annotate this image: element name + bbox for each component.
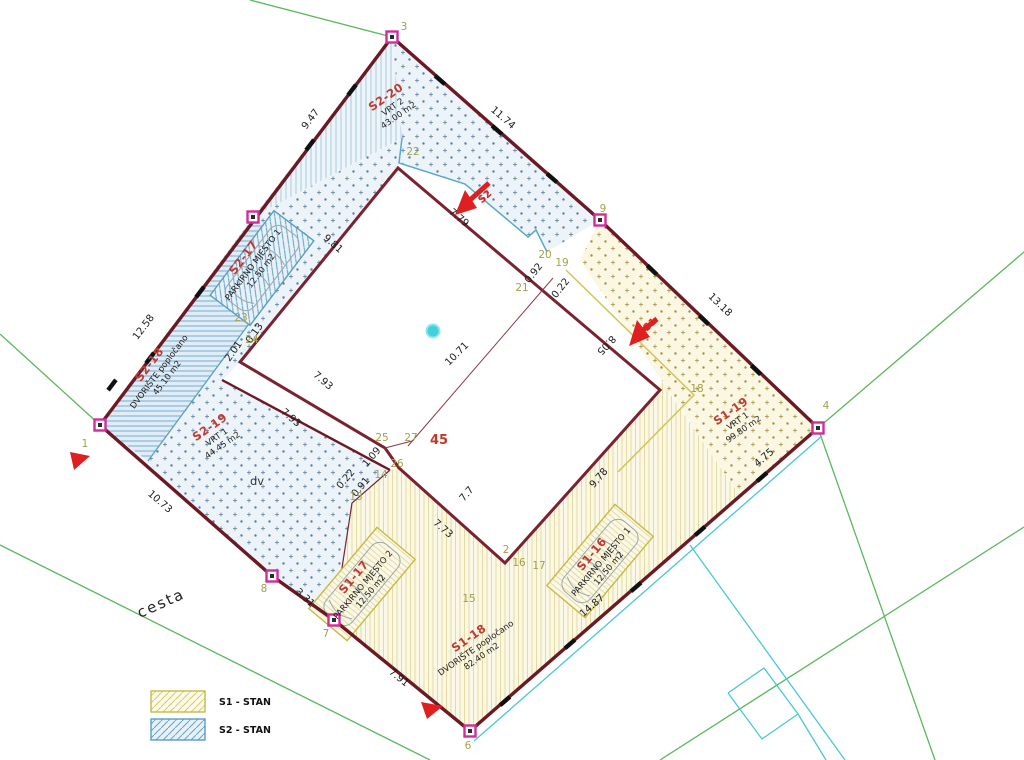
vertex-number: 18	[690, 383, 703, 395]
road-label: cesta	[134, 585, 187, 622]
vertex-number: 25	[375, 432, 388, 444]
boundary-marker	[387, 32, 398, 43]
boundary-marker	[813, 423, 824, 434]
building-number: 45	[430, 433, 448, 448]
vertex-number: 8	[261, 583, 268, 595]
vertex-number: 16	[512, 557, 526, 569]
road-edge	[250, 0, 392, 37]
dimension-label: 10.73	[145, 489, 174, 516]
vertex-number: 21	[515, 282, 528, 294]
vertex-number: 26	[390, 458, 404, 470]
legend: S1 - STAN S2 - STAN	[151, 691, 271, 740]
boundary-marker	[95, 420, 106, 431]
legend-label-s2: S2 - STAN	[219, 725, 271, 736]
adjacent-parcel-line	[690, 545, 845, 760]
legend-label-s1: S1 - STAN	[219, 697, 271, 708]
boundary-marker	[267, 571, 278, 582]
vertex-number: 24	[245, 334, 259, 346]
vertex-number: 14	[374, 469, 388, 481]
vertex-number: 1	[82, 438, 89, 450]
vertex-number: 7	[323, 628, 330, 640]
vertex-number: 23	[234, 312, 247, 324]
dv-label: dv	[250, 474, 264, 488]
vertex-number: 4	[823, 400, 830, 412]
vertex-number: 3	[401, 21, 408, 33]
dimension-label: 12.58	[131, 313, 157, 342]
vertex-number: 15	[462, 593, 475, 605]
entrance-triangle	[70, 452, 90, 470]
vertex-number: 19	[555, 257, 568, 269]
road-edge	[0, 334, 100, 425]
vertex-number: 22	[406, 146, 419, 158]
vertex-number: 20	[538, 249, 551, 261]
legend-swatch-s2	[151, 719, 205, 740]
boundary-marker	[465, 726, 476, 737]
vertex-number: 9	[600, 203, 607, 215]
vertex-number: 2	[503, 544, 510, 556]
vertex-number: 27	[404, 432, 417, 444]
legend-swatch-s1	[151, 691, 205, 712]
road-edge	[660, 527, 1024, 760]
site-plan: S2 S1 S2-20VRT 243.00 m2S2-17PARKIRNO MJ…	[0, 0, 1024, 760]
fence-tick	[106, 378, 117, 391]
boundary-marker	[595, 215, 606, 226]
vertex-number: 17	[532, 560, 545, 572]
vertex-number: 6	[465, 740, 472, 752]
road-edge	[818, 428, 935, 760]
dimension-label: 0.22	[550, 276, 572, 300]
dimension-label: 13.18	[706, 291, 734, 319]
boundary-marker	[248, 212, 259, 223]
dimension-label: 9.47	[300, 107, 322, 131]
road-edge	[818, 252, 1024, 428]
adjacent-parcel-line	[798, 714, 826, 760]
vertex-number: 13	[349, 491, 362, 503]
survey-point-dot	[427, 325, 440, 338]
